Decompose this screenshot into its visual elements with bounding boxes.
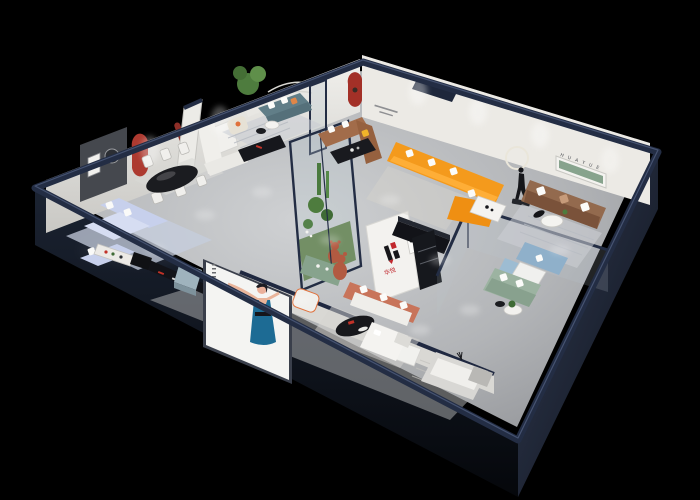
sofa-plant: [563, 210, 568, 215]
showroom-svg: H U A Y U E: [0, 0, 700, 500]
table-plant: [509, 301, 516, 308]
atrium-plant: [308, 197, 324, 213]
showroom-render: H U A Y U E: [0, 0, 700, 500]
side-table-black: [495, 301, 505, 307]
atrium-plant-4: [303, 219, 313, 229]
cactus-plant: [317, 163, 321, 195]
cactus-plant-2: [326, 171, 329, 198]
round-coffee-table: [541, 215, 563, 227]
niche-sculpture: [353, 88, 358, 93]
round-table-black: [256, 128, 266, 134]
round-table-white: [265, 121, 279, 129]
